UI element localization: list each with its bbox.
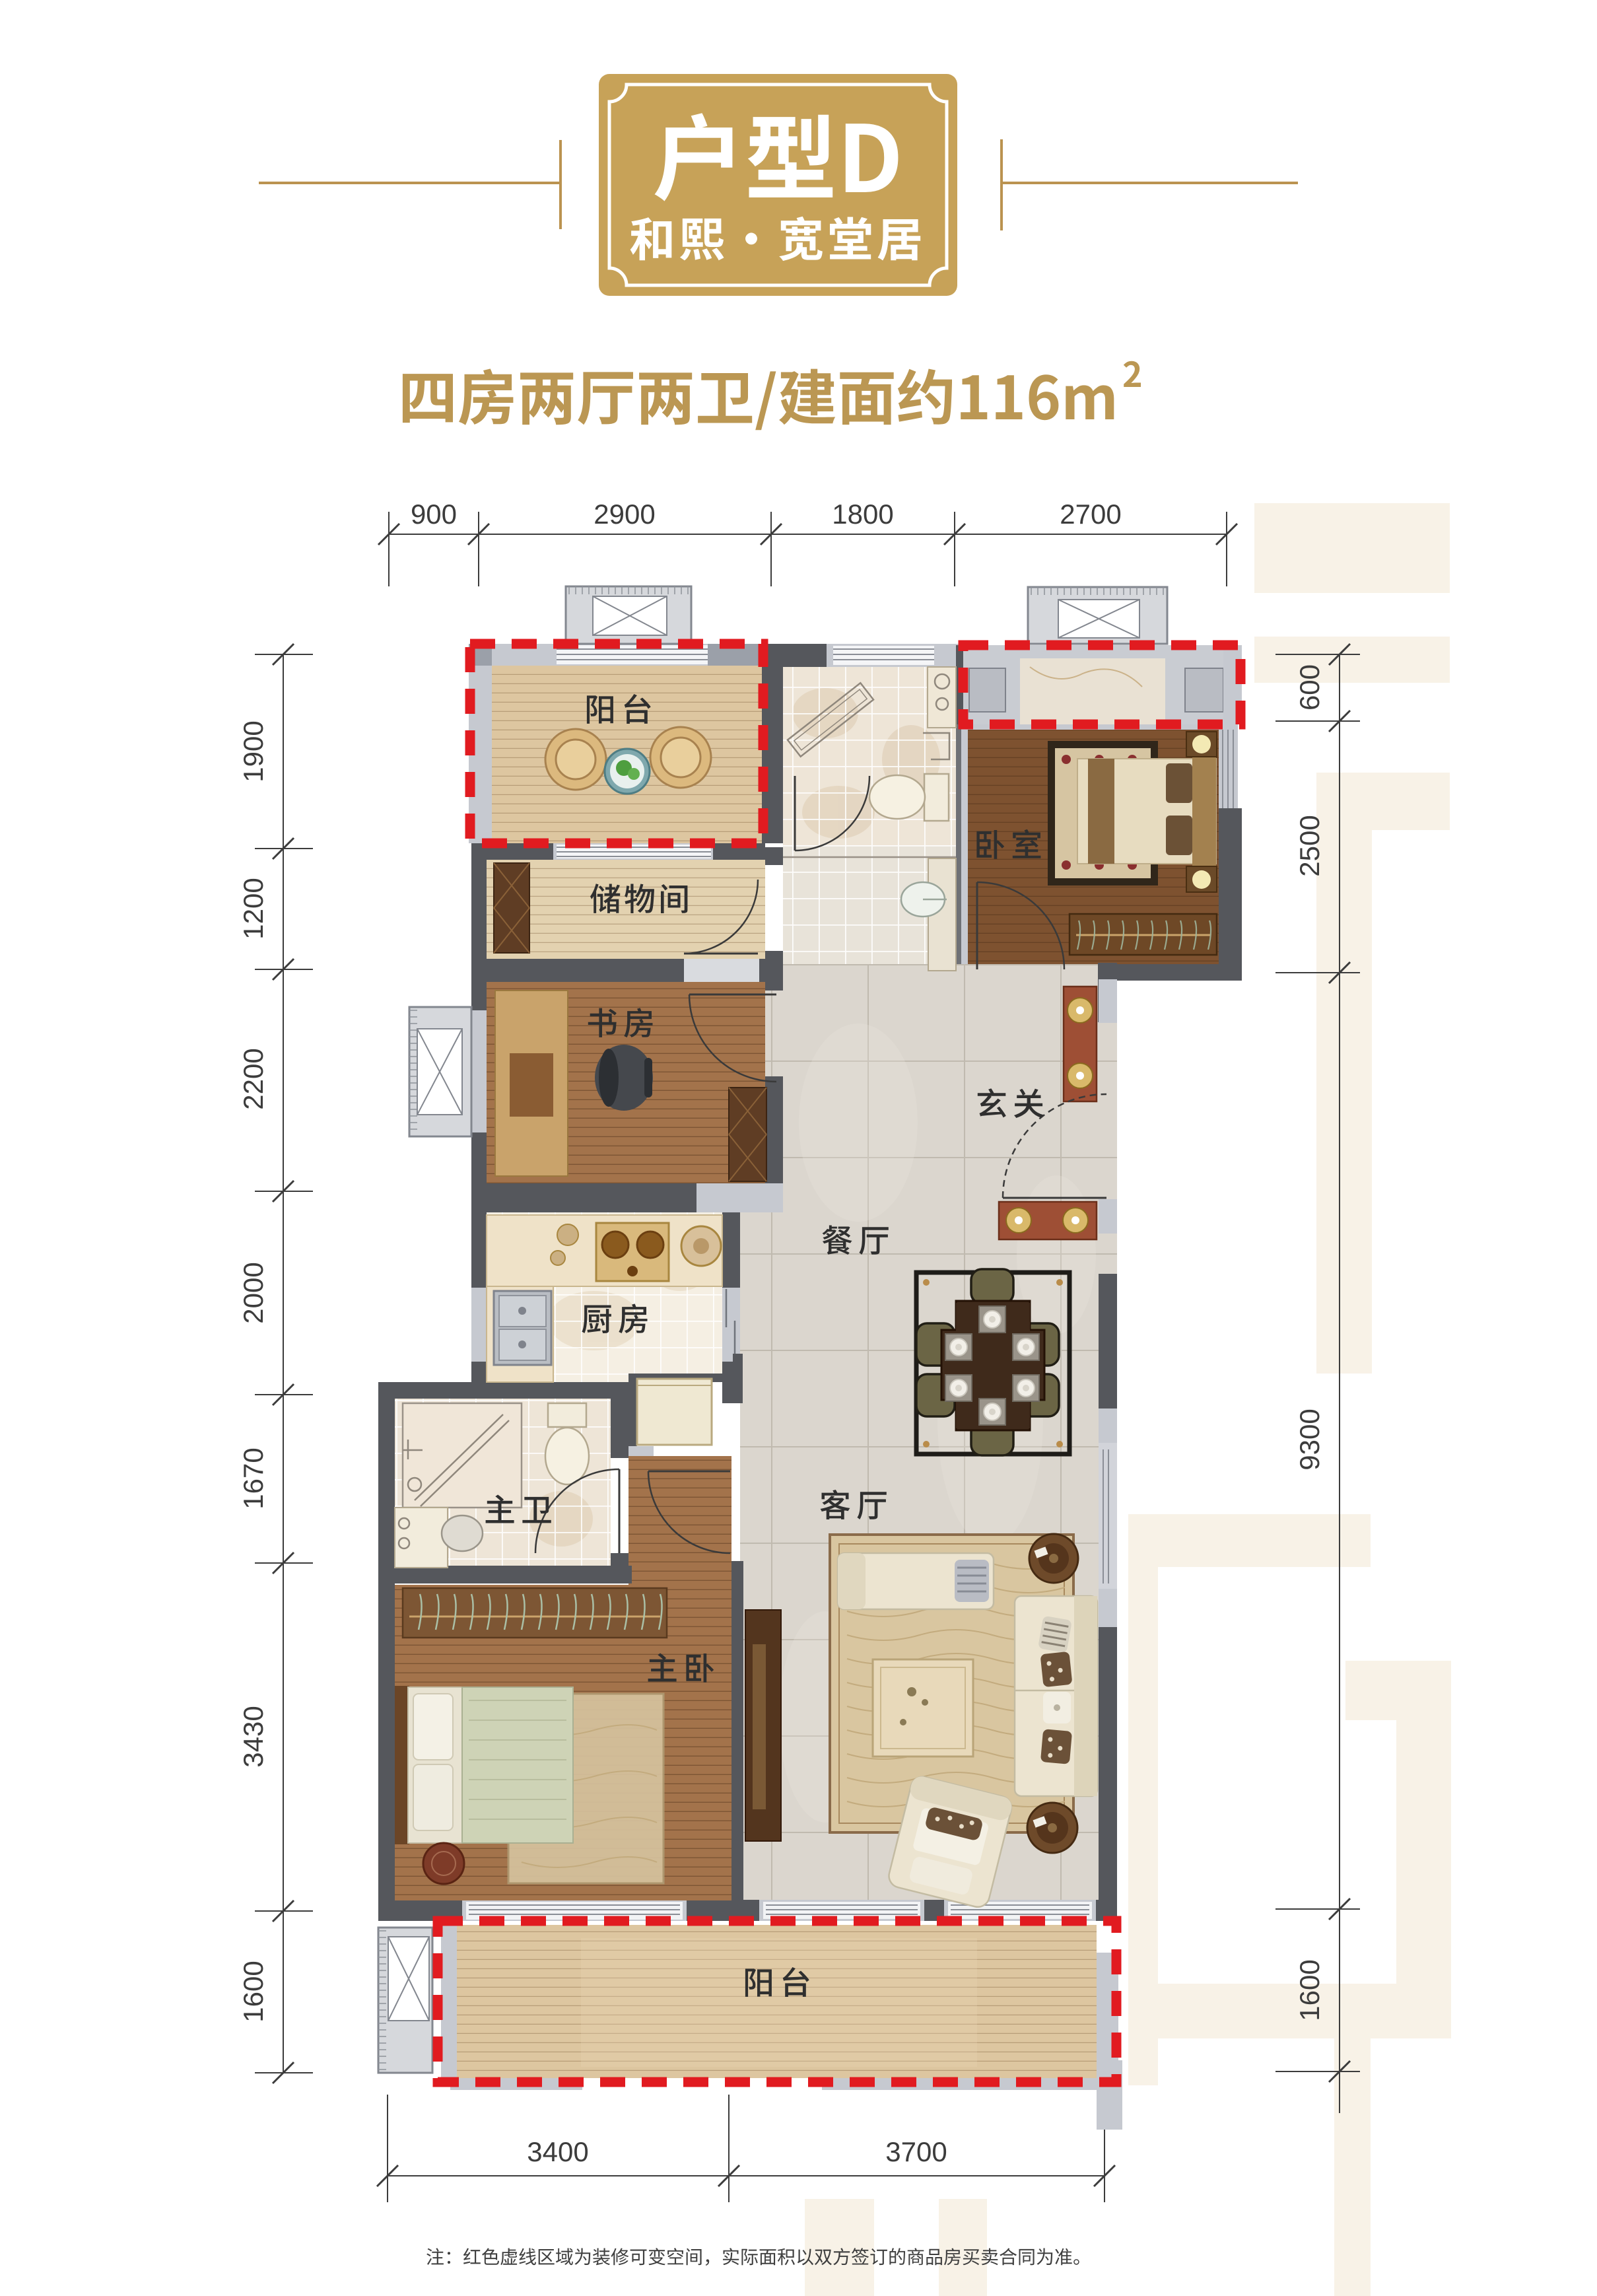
svg-text:3400: 3400 xyxy=(527,2136,588,2167)
svg-text:3430: 3430 xyxy=(238,1706,269,1767)
svg-text:1600: 1600 xyxy=(1294,1959,1325,2021)
svg-text:900: 900 xyxy=(411,499,457,530)
svg-text:2700: 2700 xyxy=(1060,499,1121,530)
svg-text:2500: 2500 xyxy=(1294,815,1325,876)
svg-text:1600: 1600 xyxy=(238,1961,269,2022)
svg-text:2900: 2900 xyxy=(594,499,655,530)
svg-text:600: 600 xyxy=(1294,664,1325,711)
svg-text:1670: 1670 xyxy=(238,1447,269,1509)
svg-text:9300: 9300 xyxy=(1294,1409,1325,1470)
svg-text:1900: 1900 xyxy=(238,720,269,782)
svg-text:1800: 1800 xyxy=(832,499,893,530)
svg-text:1200: 1200 xyxy=(238,878,269,939)
svg-text:2200: 2200 xyxy=(238,1048,269,1109)
svg-text:3700: 3700 xyxy=(885,2136,947,2167)
svg-text:2000: 2000 xyxy=(238,1262,269,1323)
